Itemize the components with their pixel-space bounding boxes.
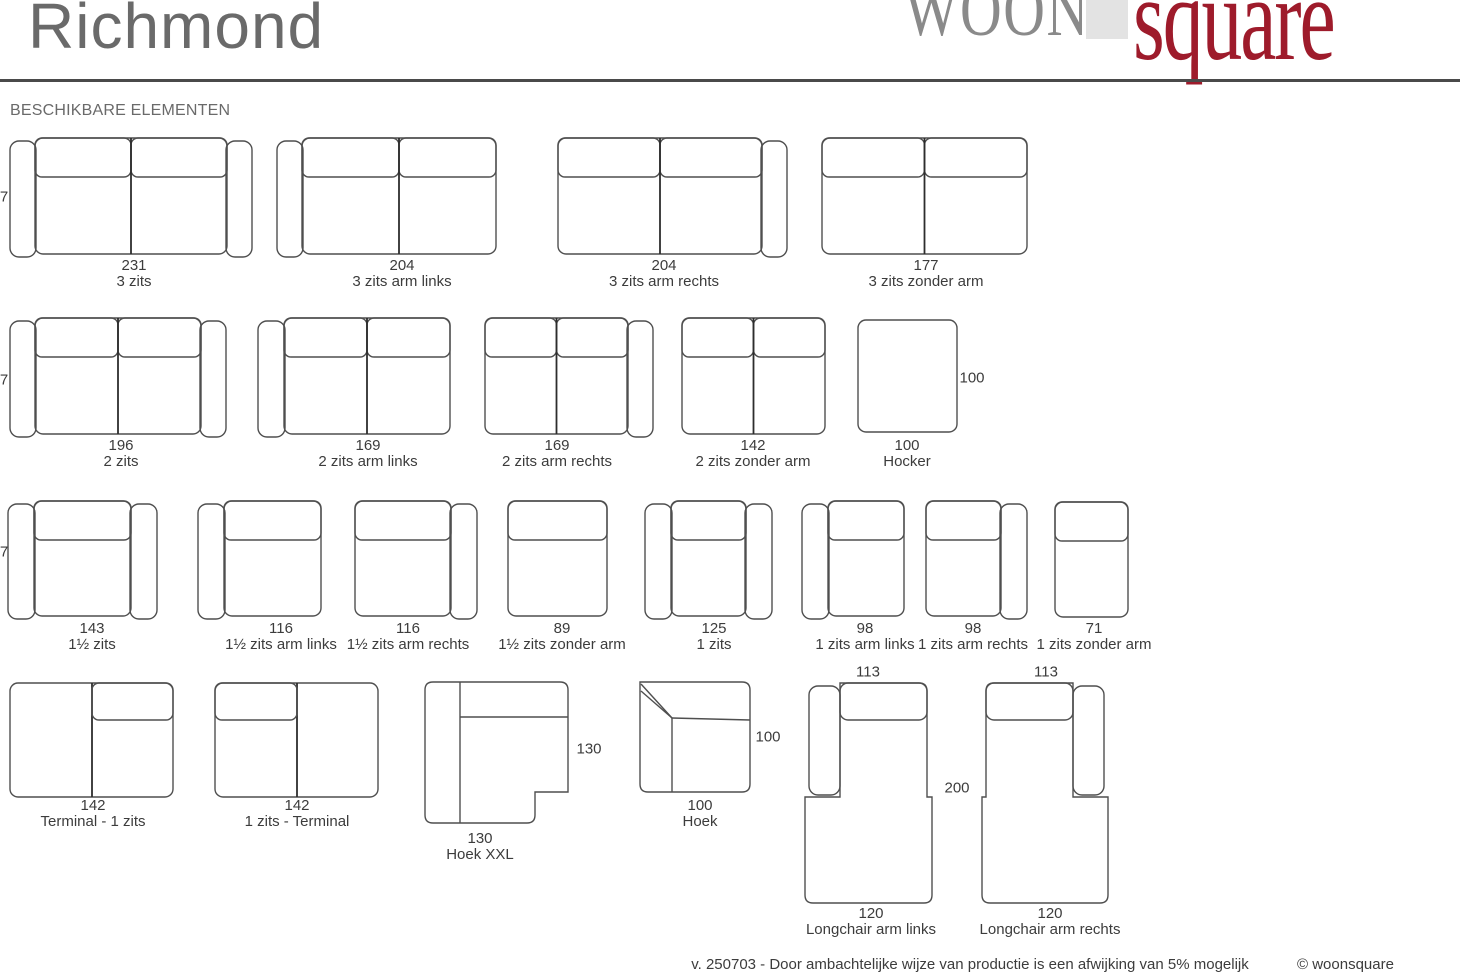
label-3-zits: 2313 zits [116,258,151,290]
name-anderhalf-zits-arm-rechts: 1½ zits arm rechts [347,637,470,653]
logo-woon-text: WOON [904,0,1090,48]
name-1-zits-zonder-arm: 1 zits zonder arm [1036,637,1151,653]
label-terminal-1-zits: 142Terminal - 1 zits [40,798,145,830]
width-dim-3-zits-zonder-arm: 177 [868,258,983,274]
longchair-arm-links-body [805,683,932,903]
anderhalf-zits-arm-rechts-body [355,501,451,616]
name-anderhalf-zits-arm-links: 1½ zits arm links [225,637,337,653]
label-hoek: 100Hoek [682,798,717,830]
element-3-zits-zonder-arm [822,138,1027,257]
label-1-zits-arm-links: 981 zits arm links [815,621,914,653]
element-hoek-xxl [425,682,568,823]
name-3-zits-arm-rechts: 3 zits arm rechts [609,274,719,290]
anderhalf-zits-arm-links-body [224,501,321,616]
label-hoek-xxl: 130Hoek XXL [446,831,514,863]
3-zits-arm-right [226,141,252,257]
label-2-zits-arm-links: 1692 zits arm links [318,438,417,470]
1-zits-arm-rechts-arm-right [1000,504,1027,619]
3-zits-arm-links-arm-left [277,141,303,257]
2-zits-arm-rechts-backrest-left [485,318,557,357]
depth-dim-row-3: 7 [0,544,8,561]
name-hocker: Hocker [883,454,931,470]
1-zits-arm-left [645,504,672,619]
label-hocker: 100Hocker [883,438,931,470]
element-anderhalf-zits-arm-rechts [355,501,477,619]
depth-dim-row-1: 7 [0,189,8,206]
element-2-zits-arm-links [258,318,450,437]
name-2-zits-zonder-arm: 2 zits zonder arm [695,454,810,470]
element-longchair-arm-rechts [982,683,1108,903]
anderhalf-zits-backrest [34,501,131,540]
hocker-side-dim: 100 [959,370,984,387]
3-zits-arm-left [10,141,36,257]
label-longchair-arm-rechts: 120Longchair arm rechts [980,906,1121,938]
2-zits-backrest-right [118,318,201,357]
longchair-rechts-top-dim: 113 [1034,664,1058,681]
hoek-side-dim: 100 [755,729,780,746]
width-dim-anderhalf-zits-arm-rechts: 116 [347,621,470,637]
label-2-zits: 1962 zits [103,438,138,470]
label-2-zits-zonder-arm: 1422 zits zonder arm [695,438,810,470]
3-zits-zonder-arm-backrest-left [822,138,925,177]
anderhalf-zits-zonder-arm-backrest [508,501,607,540]
footer-copyright: © woonsquare [1297,956,1394,973]
footer-note: v. 250703 - Door ambachtelijke wijze van… [691,956,1249,973]
3-zits-backrest-right [131,138,227,177]
2-zits-arm-right [200,321,226,437]
1-zits-arm-rechts-body [926,501,1001,616]
2-zits-arm-rechts-backrest-right [557,318,629,357]
label-2-zits-arm-rechts: 1692 zits arm rechts [502,438,612,470]
label-1-zits-zonder-arm: 711 zits zonder arm [1036,621,1151,653]
name-anderhalf-zits: 1½ zits [68,637,116,653]
width-dim-1-zits-arm-links: 98 [815,621,914,637]
2-zits-zonder-arm-backrest-left [682,318,754,357]
1-zits-zonder-arm-backrest [1055,502,1128,541]
width-dim-1-zits-arm-rechts: 98 [918,621,1028,637]
longchair-arm-rechts-body [982,683,1108,903]
2-zits-backrest-left [35,318,118,357]
1-zits-arm-right [745,504,772,619]
2-zits-arm-left [10,321,36,437]
longchair-links-top-dim: 113 [856,664,880,681]
element-1-zits-arm-links [802,501,904,619]
hoek-xxl-side-dim: 130 [576,741,601,758]
1-zits-zonder-arm-body [1055,502,1128,617]
width-dim-1-zits: 125 [696,621,731,637]
label-1-zits: 1251 zits [696,621,731,653]
width-dim-2-zits-arm-rechts: 169 [502,438,612,454]
label-3-zits-arm-rechts: 2043 zits arm rechts [609,258,719,290]
element-1-zits-zonder-arm [1055,502,1128,620]
name-longchair-arm-links: Longchair arm links [806,922,936,938]
label-anderhalf-zits-zonder-arm: 891½ zits zonder arm [498,621,626,653]
width-dim-longchair-arm-rechts: 120 [980,906,1121,922]
element-hoek [640,682,750,792]
longchair-arm-rechts-arm-right [1073,686,1104,795]
anderhalf-zits-arm-links-arm-left [198,504,225,619]
name-terminal-1-zits: Terminal - 1 zits [40,814,145,830]
width-dim-2-zits: 196 [103,438,138,454]
element-anderhalf-zits [8,501,157,619]
label-anderhalf-zits: 1431½ zits [68,621,116,653]
element-3-zits-arm-rechts [558,138,787,257]
longchair-arm-links-arm-left [809,686,840,795]
anderhalf-zits-arm-right [130,504,157,619]
section-title: BESCHIKBARE ELEMENTEN [10,102,230,120]
width-dim-hoek-xxl: 130 [446,831,514,847]
name-3-zits: 3 zits [116,274,151,290]
hocker-body [858,320,957,432]
1-zits-backrest [671,501,746,540]
name-1-zits-arm-rechts: 1 zits arm rechts [918,637,1028,653]
label-anderhalf-zits-arm-rechts: 1161½ zits arm rechts [347,621,470,653]
element-anderhalf-zits-arm-links [198,501,321,619]
element-longchair-arm-links [805,683,932,903]
hoek-corner-seam [641,684,672,718]
name-2-zits-arm-rechts: 2 zits arm rechts [502,454,612,470]
element-2-zits-zonder-arm [682,318,825,437]
logo-square-text: square [1133,0,1334,79]
1-zits-arm-links-arm-left [802,504,829,619]
name-hoek-xxl: Hoek XXL [446,847,514,863]
element-anderhalf-zits-zonder-arm [508,501,607,619]
name-hoek: Hoek [682,814,717,830]
label-3-zits-zonder-arm: 1773 zits zonder arm [868,258,983,290]
label-1-zits-terminal: 1421 zits - Terminal [245,798,350,830]
hoek-corner-seam [641,691,672,718]
element-3-zits-arm-links [277,138,496,257]
3-zits-arm-rechts-backrest-right [660,138,762,177]
width-dim-1-zits-terminal: 142 [245,798,350,814]
name-longchair-arm-rechts: Longchair arm rechts [980,922,1121,938]
width-dim-2-zits-arm-links: 169 [318,438,417,454]
anderhalf-zits-arm-links-backrest [224,501,321,540]
2-zits-arm-rechts-arm-right [627,321,653,437]
name-2-zits: 2 zits [103,454,138,470]
element-hocker [858,320,957,432]
anderhalf-zits-zonder-arm-body [508,501,607,616]
1-zits-arm-links-backrest [828,501,904,540]
width-dim-terminal-1-zits: 142 [40,798,145,814]
hoek-body [640,682,750,792]
spec-sheet: Richmond WOON square BESCHIKBARE ELEMENT… [0,0,1460,974]
3-zits-arm-rechts-arm-right [761,141,787,257]
anderhalf-zits-arm-rechts-backrest [355,501,451,540]
element-2-zits-arm-rechts [485,318,653,437]
depth-dim-row-2: 7 [0,372,8,389]
anderhalf-zits-body [34,501,131,616]
width-dim-2-zits-zonder-arm: 142 [695,438,810,454]
element-1-zits-terminal [215,683,378,797]
name-1-zits-terminal: 1 zits - Terminal [245,814,350,830]
width-dim-3-zits: 231 [116,258,151,274]
element-2-zits [10,318,226,437]
width-dim-3-zits-arm-rechts: 204 [609,258,719,274]
width-dim-anderhalf-zits: 143 [68,621,116,637]
header-divider-rule [0,79,1460,82]
3-zits-backrest-left [35,138,131,177]
longchair-arm-links-backrest [840,683,927,720]
label-anderhalf-zits-arm-links: 1161½ zits arm links [225,621,337,653]
3-zits-arm-links-backrest-left [302,138,399,177]
name-2-zits-arm-links: 2 zits arm links [318,454,417,470]
width-dim-hoek: 100 [682,798,717,814]
element-1-zits [645,501,772,619]
name-3-zits-arm-links: 3 zits arm links [352,274,451,290]
2-zits-arm-links-arm-left [258,321,285,437]
hoek-xxl-body [425,682,568,823]
3-zits-arm-rechts-backrest-left [558,138,660,177]
3-zits-arm-links-backrest-right [399,138,496,177]
label-longchair-arm-links: 120Longchair arm links [806,906,936,938]
1-zits-body [671,501,746,616]
width-dim-anderhalf-zits-zonder-arm: 89 [498,621,626,637]
1-zits-arm-rechts-backrest [926,501,1001,540]
anderhalf-zits-arm-left [8,504,35,619]
width-dim-1-zits-zonder-arm: 71 [1036,621,1151,637]
3-zits-zonder-arm-backrest-right [925,138,1028,177]
width-dim-longchair-arm-links: 120 [806,906,936,922]
anderhalf-zits-arm-rechts-arm-right [450,504,477,619]
name-anderhalf-zits-zonder-arm: 1½ zits zonder arm [498,637,626,653]
name-3-zits-zonder-arm: 3 zits zonder arm [868,274,983,290]
element-3-zits [10,138,252,257]
2-zits-arm-links-backrest-right [367,318,450,357]
1-zits-terminal-backrest [215,683,297,720]
hoek-backrest-edge-horizontal [672,718,750,720]
width-dim-hocker: 100 [883,438,931,454]
element-terminal-1-zits [10,683,173,797]
label-3-zits-arm-links: 2043 zits arm links [352,258,451,290]
2-zits-zonder-arm-backrest-right [754,318,826,357]
longchair-length-dim: 200 [944,780,969,797]
page-title: Richmond [28,0,324,58]
logo-block [1086,0,1128,39]
element-1-zits-arm-rechts [926,501,1027,619]
width-dim-anderhalf-zits-arm-links: 116 [225,621,337,637]
2-zits-arm-links-backrest-left [284,318,367,357]
name-1-zits: 1 zits [696,637,731,653]
label-1-zits-arm-rechts: 981 zits arm rechts [918,621,1028,653]
terminal-1-zits-backrest [92,683,173,720]
1-zits-arm-links-body [828,501,904,616]
width-dim-3-zits-arm-links: 204 [352,258,451,274]
longchair-arm-rechts-backrest [986,683,1073,720]
name-1-zits-arm-links: 1 zits arm links [815,637,914,653]
